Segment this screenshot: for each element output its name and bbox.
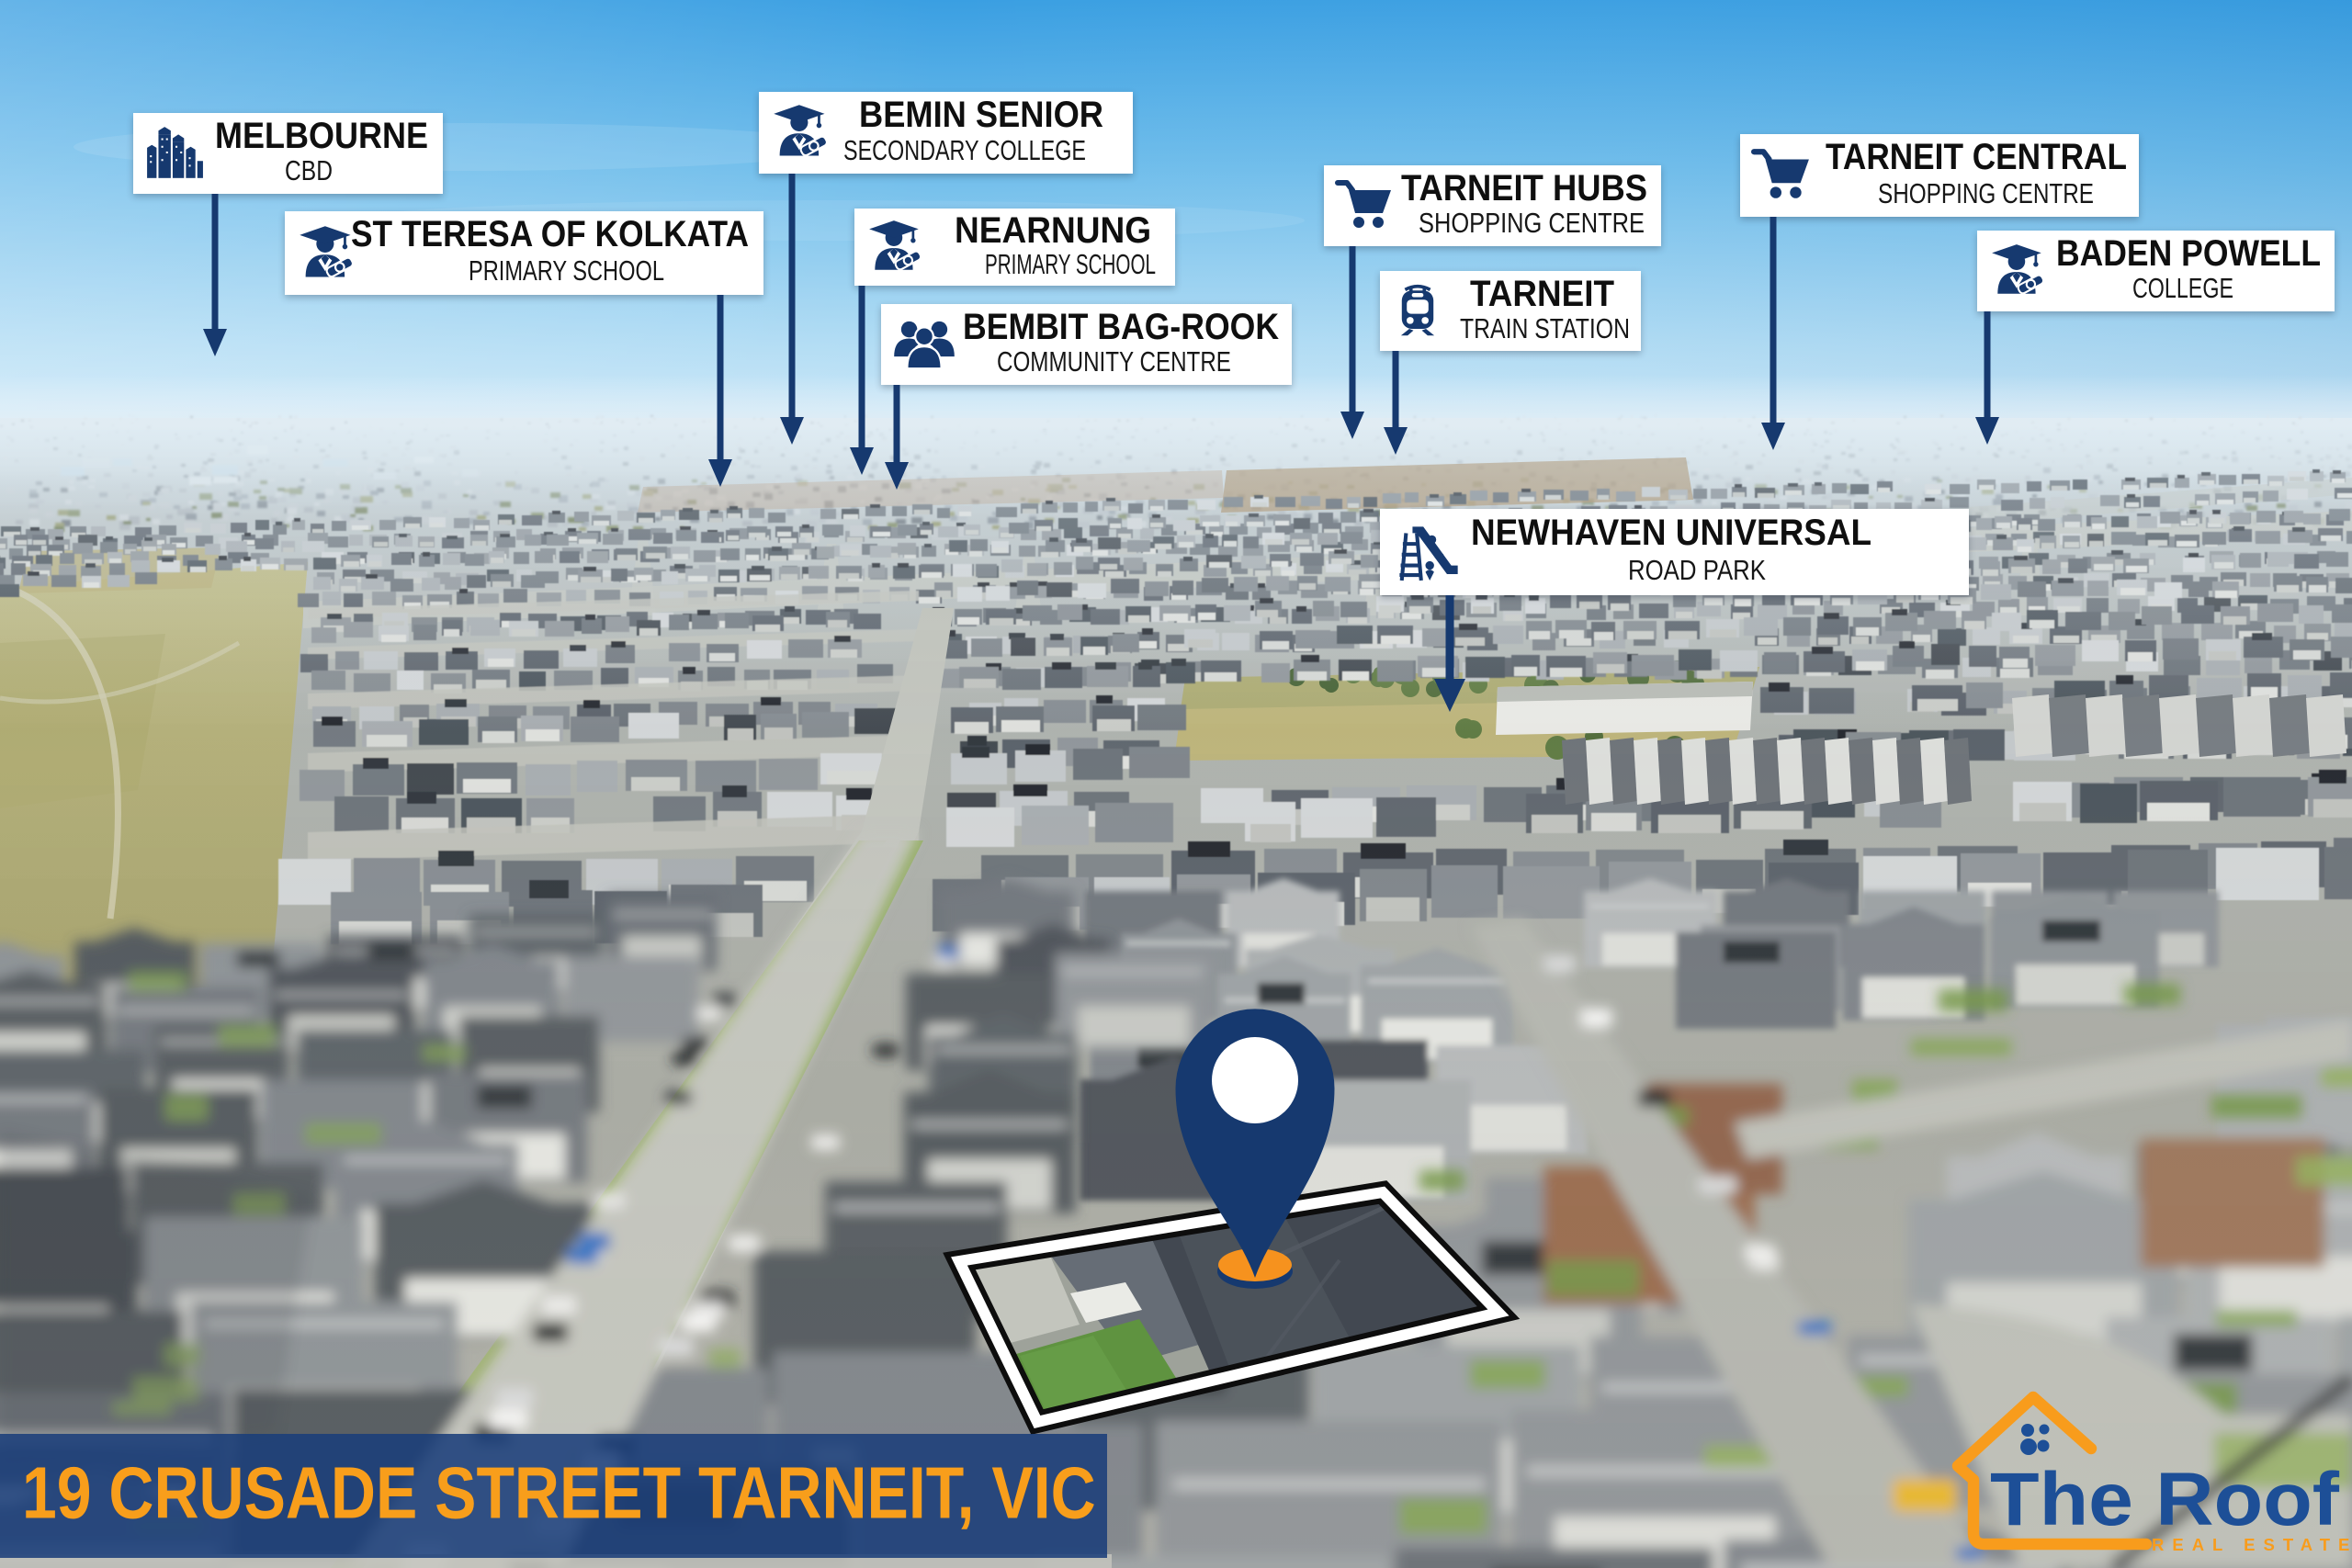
svg-text:REAL ESTATE: REAL ESTATE [2152, 1535, 2352, 1554]
svg-text:The Roof: The Roof [1990, 1458, 2340, 1541]
